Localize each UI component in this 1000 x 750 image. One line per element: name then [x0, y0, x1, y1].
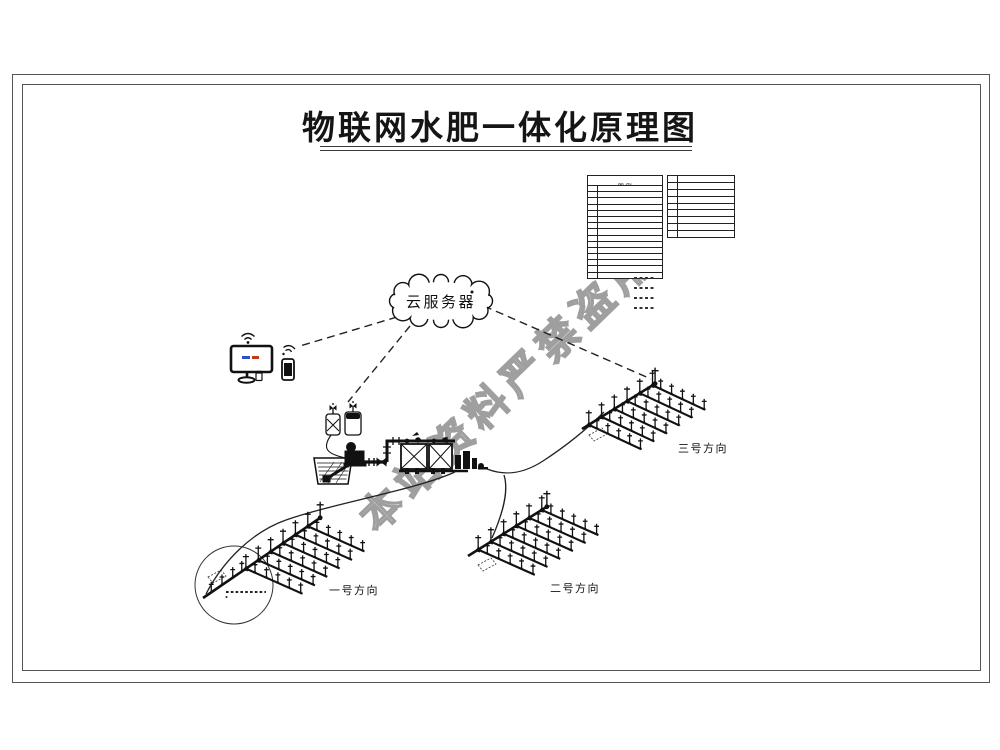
- legend-row: 22流量计: [668, 217, 734, 224]
- legend-note-dash: [634, 277, 656, 279]
- fertilizer-tanks: [326, 401, 361, 435]
- wifi-icon: [242, 334, 255, 340]
- legend-note-dash: [634, 307, 656, 309]
- screen-blue-dash: [242, 356, 250, 359]
- wifi-icon: [284, 346, 296, 352]
- legend-row: 18手机终端: [668, 190, 734, 197]
- field-3: 三号方向: [582, 368, 728, 455]
- page-title: 物联网水肥一体化原理图: [0, 101, 1000, 149]
- supply-pipeline: [206, 412, 604, 594]
- legend-row: 19蓄水池: [668, 197, 734, 204]
- valve-cluster: [455, 451, 488, 470]
- legend-row: 17监控电脑: [668, 183, 734, 190]
- field-tag: [478, 558, 496, 571]
- legend-table-main: 图例 1潜水泵2止回阀3闸阀4水表5过滤器6施肥机7压力表8电磁阀9田间控制器1…: [587, 175, 663, 279]
- legend-row: 24传感器: [668, 231, 734, 237]
- field-label: 二号方向: [550, 581, 600, 595]
- legend-row: 20水泵机组: [668, 204, 734, 211]
- field-1: 一号方向: [203, 502, 379, 598]
- screenshot-root: { "title": "物联网水肥一体化原理图", "watermark": "…: [0, 0, 1000, 750]
- fertilizer-hose: [326, 435, 346, 458]
- irrigation-fields: 一号方向二号方向三号方向: [203, 368, 728, 598]
- legend-note-dash: [634, 287, 656, 289]
- legend-row: 16云服务器: [668, 176, 734, 183]
- field-label: 一号方向: [329, 583, 379, 597]
- cloud-link-dashes: [300, 306, 651, 402]
- pc-monitor-icon: [231, 334, 272, 383]
- legend-table-secondary: 16云服务器17监控电脑18手机终端19蓄水池20水泵机组21控制柜22流量计2…: [667, 175, 735, 238]
- legend-row: 23变频器: [668, 224, 734, 231]
- legend-note-dash: [634, 297, 656, 299]
- plug-icon: [256, 373, 262, 381]
- legend-row: 21控制柜: [668, 210, 734, 217]
- field-2: 二号方向: [468, 491, 600, 595]
- dot: [471, 291, 474, 294]
- phone-icon: [282, 346, 295, 380]
- cloud-label: 云服务器: [406, 294, 476, 311]
- field-label: 三号方向: [678, 441, 728, 455]
- legend-title: 图例: [588, 176, 662, 186]
- title-underline: [320, 146, 692, 151]
- screen-red-dash: [252, 356, 259, 359]
- cloud-server: 云服务器: [390, 274, 493, 328]
